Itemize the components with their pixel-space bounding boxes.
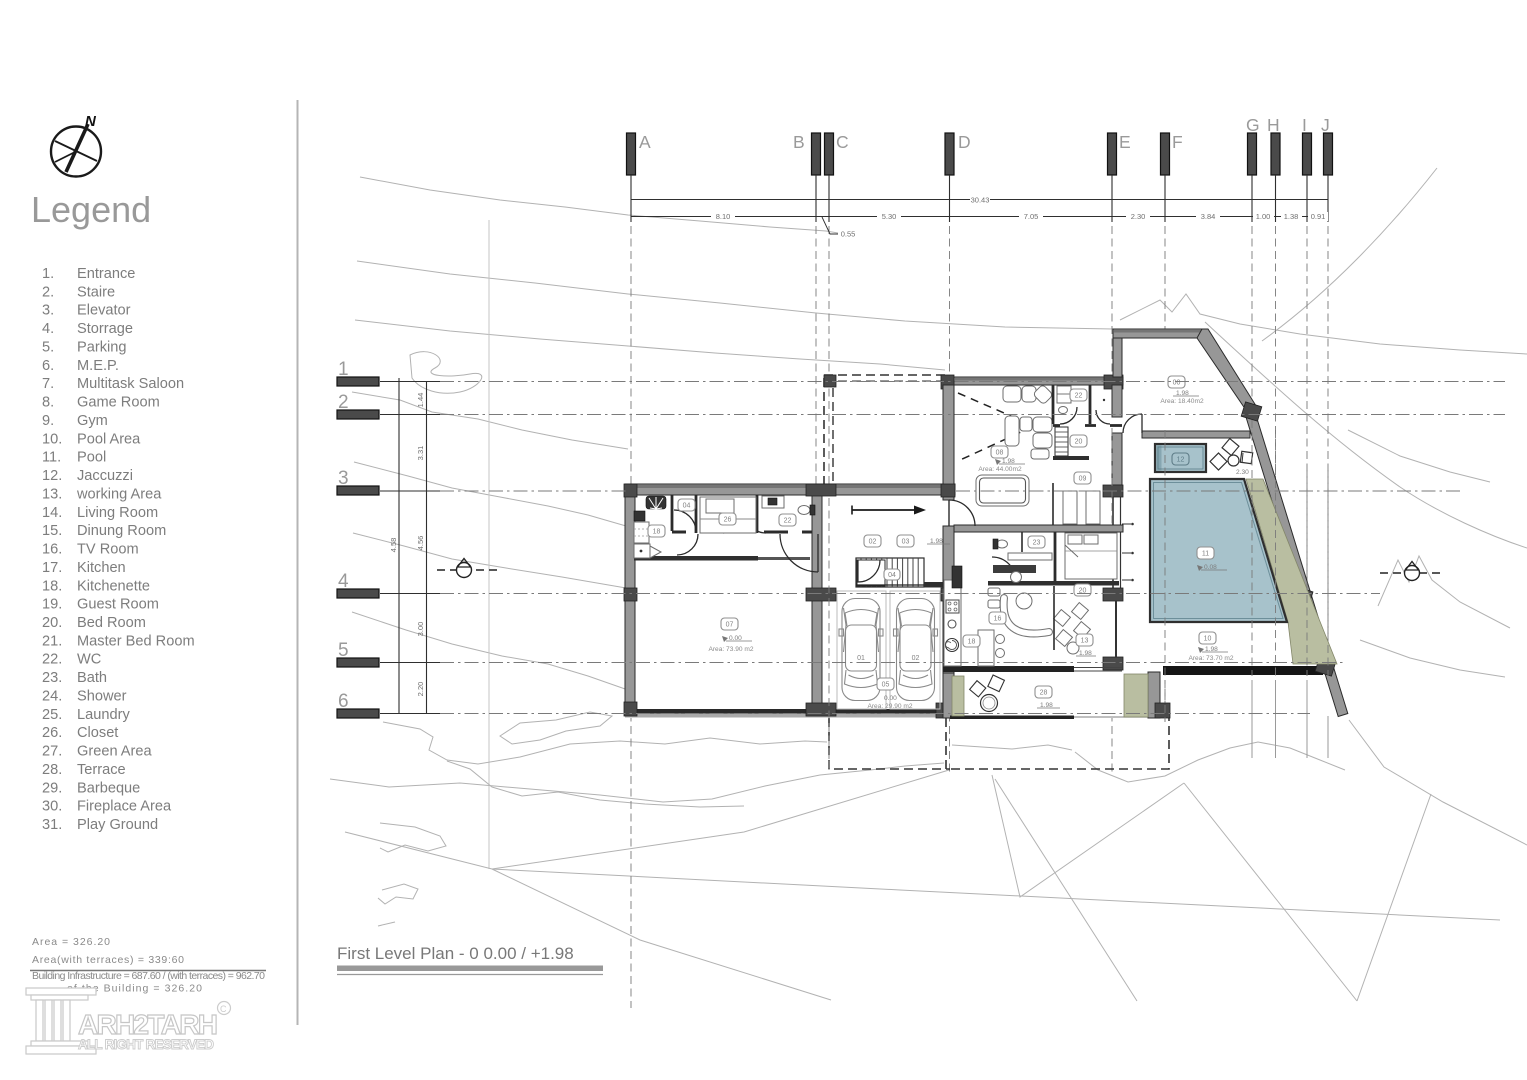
svg-text:13.: 13. [42,486,62,502]
svg-text:11.: 11. [42,450,61,466]
svg-text:1.44: 1.44 [416,393,425,408]
svg-text:H: H [1267,115,1280,135]
svg-text:Guest Room: Guest Room [77,597,159,613]
svg-text:Area = 326.20: Area = 326.20 [32,936,110,948]
svg-text:2.30: 2.30 [1236,469,1249,476]
svg-text:Area: 18.40m2: Area: 18.40m2 [1160,398,1204,405]
svg-text:27.: 27. [42,744,62,760]
svg-text:08: 08 [996,450,1004,457]
svg-text:10.: 10. [42,431,62,447]
svg-text:0.00: 0.00 [884,695,897,702]
svg-text:8.10: 8.10 [716,212,731,221]
svg-text:ALL RIGHT RESERVED: ALL RIGHT RESERVED [78,1037,214,1052]
svg-text:13: 13 [1081,638,1089,645]
svg-text:I: I [1302,115,1307,135]
svg-text:23: 23 [1033,540,1041,547]
svg-text:5.30: 5.30 [882,212,897,221]
svg-text:3.84: 3.84 [1201,212,1216,221]
svg-text:4.58: 4.58 [389,538,398,553]
svg-text:Closet: Closet [77,725,118,741]
svg-text:Building Infrastructure = 687.: Building Infrastructure = 687.60 / (with… [32,970,265,982]
svg-text:Area(with terraces) = 339:60: Area(with terraces) = 339:60 [32,954,184,966]
svg-text:2.20: 2.20 [416,682,425,697]
svg-text:30.: 30. [42,799,62,815]
svg-text:28: 28 [1040,690,1048,697]
svg-text:2.30: 2.30 [1131,212,1146,221]
svg-text:12.: 12. [42,468,62,484]
svg-text:N: N [85,113,97,130]
svg-text:18.: 18. [42,578,62,594]
svg-text:4: 4 [338,571,349,592]
svg-text:07: 07 [726,622,734,629]
svg-text:02: 02 [869,539,877,546]
svg-text:18: 18 [968,639,976,646]
svg-text:29.: 29. [42,780,62,796]
svg-text:Living Room: Living Room [77,505,158,521]
svg-text:26: 26 [724,517,732,524]
svg-text:16: 16 [994,616,1002,623]
svg-text:Laundry: Laundry [77,707,130,723]
svg-text:J: J [1321,115,1330,135]
svg-text:Parking: Parking [77,340,126,356]
svg-text:05: 05 [882,682,890,689]
svg-text:working Area: working Area [76,486,162,502]
svg-text:Master Bed Room: Master Bed Room [77,633,195,649]
svg-text:1.38: 1.38 [1284,212,1299,221]
svg-text:20.: 20. [42,615,62,631]
svg-text:22.: 22. [42,652,62,668]
svg-text:7.05: 7.05 [1024,212,1039,221]
svg-text:22: 22 [1075,393,1083,400]
svg-text:02: 02 [912,655,920,662]
svg-text:Kitchen: Kitchen [77,560,126,576]
svg-text:D: D [958,132,971,152]
svg-text:25.: 25. [42,707,62,723]
svg-text:Area: 29.90 m2: Area: 29.90 m2 [867,703,912,710]
svg-text:Dinung Room: Dinung Room [77,523,166,539]
svg-text:Barbeque: Barbeque [77,780,140,796]
svg-text:WC: WC [77,652,101,668]
svg-text:04: 04 [888,572,896,579]
svg-text:7.: 7. [42,376,54,392]
svg-text:0.55: 0.55 [841,230,856,239]
svg-text:19.: 19. [42,597,62,613]
svg-text:10: 10 [1204,636,1212,643]
svg-text:03: 03 [902,539,910,546]
svg-text:3.00: 3.00 [416,622,425,637]
svg-text:9.: 9. [42,413,54,429]
svg-text:Shower: Shower [77,689,127,705]
svg-text:ARH2TARH: ARH2TARH [78,1009,218,1040]
svg-text:2: 2 [338,392,349,413]
svg-text:Elevator: Elevator [77,303,131,319]
svg-text:TV Room: TV Room [77,542,139,558]
svg-text:A: A [639,132,651,152]
svg-text:8.: 8. [42,395,54,411]
svg-text:12: 12 [1177,457,1185,464]
svg-text:23.: 23. [42,670,62,686]
svg-text:Game Room: Game Room [77,395,160,411]
svg-text:21.: 21. [42,633,62,649]
svg-text:Entrance: Entrance [77,266,135,282]
svg-text:Pool Area: Pool Area [77,431,141,447]
svg-text:Terrace: Terrace [77,762,126,778]
svg-text:Bath: Bath [77,670,107,686]
svg-text:26.: 26. [42,725,62,741]
svg-text:0.91: 0.91 [1311,212,1326,221]
svg-text:Jaccuzzi: Jaccuzzi [77,468,133,484]
svg-text:17.: 17. [42,560,62,576]
svg-text:1.: 1. [42,266,54,282]
svg-text:14.: 14. [42,505,62,521]
svg-text:G: G [1246,115,1260,135]
svg-text:22: 22 [784,518,792,525]
svg-text:16.: 16. [42,542,62,558]
svg-text:18: 18 [653,529,661,536]
svg-text:5.: 5. [42,340,54,356]
svg-text:6.: 6. [42,358,54,374]
svg-text:30.43: 30.43 [971,196,990,205]
svg-text:C: C [220,1004,227,1014]
svg-text:3: 3 [338,468,349,489]
svg-text:B: B [793,132,805,152]
svg-text:Area: 73.90 m2: Area: 73.90 m2 [708,646,753,653]
svg-text:24.: 24. [42,689,62,705]
svg-text:20: 20 [1075,439,1083,446]
svg-text:Kitchenette: Kitchenette [77,578,150,594]
svg-text:Staire: Staire [77,284,115,300]
svg-text:Green Area: Green Area [77,744,153,760]
svg-text:5: 5 [338,640,349,661]
svg-text:Pool: Pool [77,450,106,466]
svg-text:09: 09 [1079,476,1087,483]
svg-text:4.56: 4.56 [416,536,425,551]
svg-text:00: 00 [1173,380,1181,387]
svg-text:Bed Room: Bed Room [77,615,146,631]
svg-text:F: F [1172,132,1183,152]
svg-text:4.: 4. [42,321,54,337]
svg-text:Fireplace Area: Fireplace Area [77,799,172,815]
svg-text:3.: 3. [42,303,54,319]
svg-text:01: 01 [857,655,865,662]
svg-text:04: 04 [683,503,691,510]
svg-text:28.: 28. [42,762,62,778]
svg-text:6: 6 [338,691,349,712]
svg-text:Storrage: Storrage [77,321,133,337]
svg-text:Area: 73.70 m2: Area: 73.70 m2 [1188,655,1233,662]
svg-text:11: 11 [1202,551,1209,558]
svg-text:Legend: Legend [31,189,151,230]
svg-text:C: C [836,132,849,152]
svg-text:Area: 44.00m2: Area: 44.00m2 [978,466,1022,473]
svg-text:1.00: 1.00 [1256,212,1271,221]
svg-text:First Level Plan - 0 0.00 / +1: First Level Plan - 0 0.00 / +1.98 [337,944,574,963]
svg-text:31.: 31. [42,817,62,833]
svg-text:2.: 2. [42,284,54,300]
svg-text:15.: 15. [42,523,62,539]
svg-text:Multitask Saloon: Multitask Saloon [77,376,184,392]
svg-text:E: E [1119,132,1131,152]
svg-text:M.E.P.: M.E.P. [77,358,119,374]
svg-text:Gym: Gym [77,413,108,429]
svg-text:Play Ground: Play Ground [77,817,158,833]
svg-text:3.31: 3.31 [416,446,425,461]
svg-text:1: 1 [338,359,349,380]
